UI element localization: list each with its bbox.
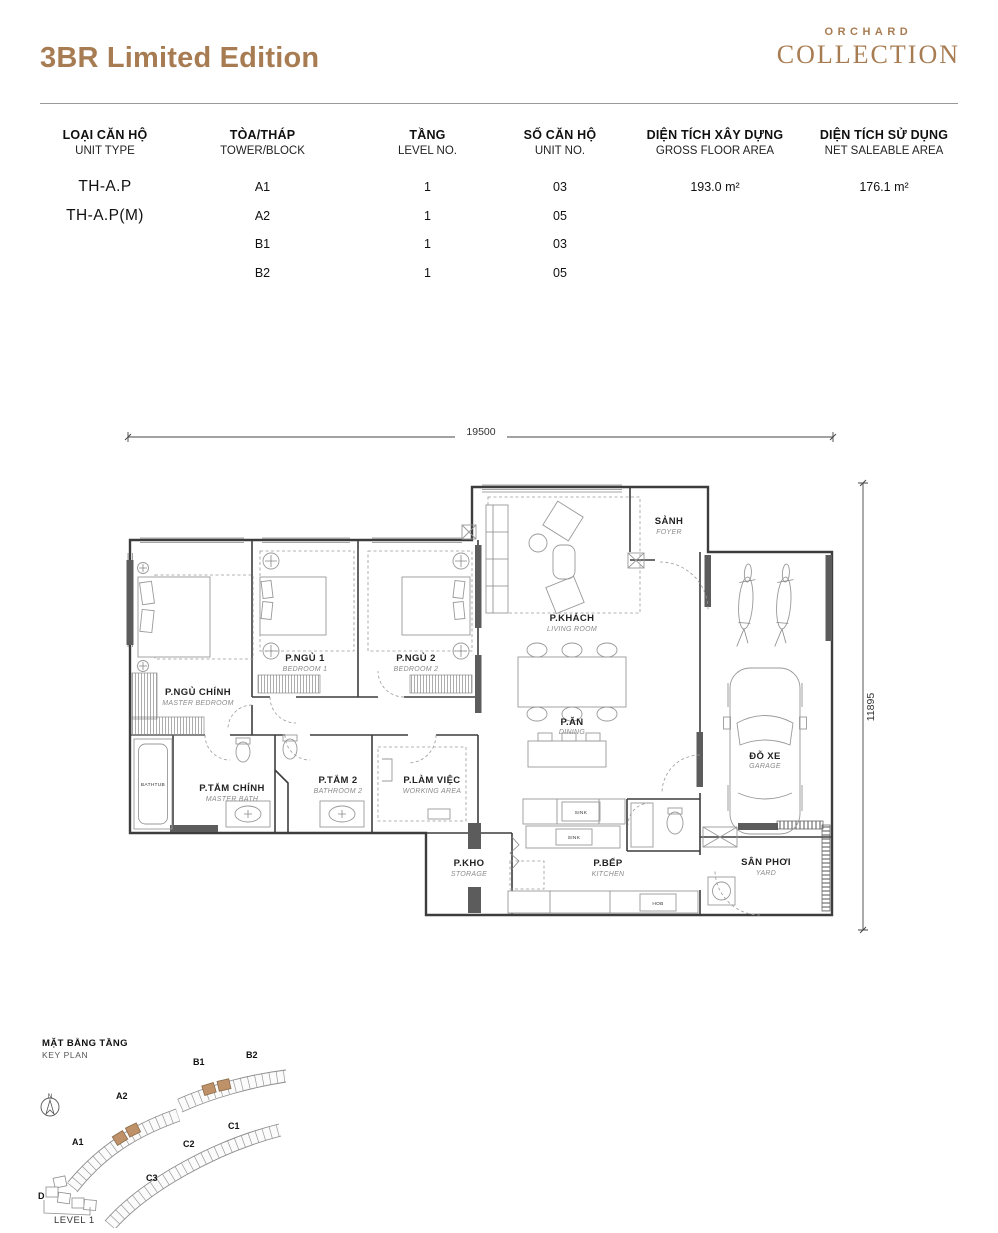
cell-unit-type: TH-A.P xyxy=(40,173,170,202)
svg-text:BEDROOM 1: BEDROOM 1 xyxy=(283,666,328,673)
dimension-width: 19500 xyxy=(125,426,836,442)
cell-net-area xyxy=(810,259,958,288)
brand-collection: COLLECTION xyxy=(777,40,960,70)
svg-text:YARD: YARD xyxy=(756,870,776,877)
bed2-icon xyxy=(368,551,472,659)
cell-tower: A2 xyxy=(170,202,355,231)
motorbike-icons xyxy=(735,564,795,648)
room-label-bedroom1: P.NGỦ 1 xyxy=(285,652,325,664)
cell-tower: B2 xyxy=(170,259,355,288)
dining-table-icon xyxy=(518,643,626,721)
keyplan-label-a1: A1 xyxy=(72,1137,84,1147)
col-header-unit-type: LOẠI CĂN HỘUNIT TYPE xyxy=(40,128,170,157)
svg-text:KITCHEN: KITCHEN xyxy=(592,871,625,878)
keyplan-label-b1: B1 xyxy=(193,1057,205,1067)
keyplan-title-vi: MẶT BẰNG TẦNG xyxy=(42,1038,128,1049)
cell-unit-no: 03 xyxy=(500,230,620,259)
room-label-working: P.LÀM VIỆC xyxy=(403,774,460,786)
cell-level: 1 xyxy=(355,173,500,202)
washing-machine-icon xyxy=(708,877,735,905)
svg-text:N: N xyxy=(48,1094,52,1100)
cell-unit-no: 05 xyxy=(500,259,620,288)
svg-text:WORKING AREA: WORKING AREA xyxy=(403,788,462,795)
cell-unit-no: 05 xyxy=(500,202,620,231)
table-row: B2 1 05 xyxy=(40,259,958,288)
svg-text:SINK: SINK xyxy=(575,810,588,816)
keyplan-band-b xyxy=(178,1070,286,1112)
svg-text:HOB: HOB xyxy=(652,901,663,907)
col-header-level: TẦNGLEVEL NO. xyxy=(355,128,500,157)
kitchen-counter-icon: SINK SINK HOB xyxy=(508,799,698,913)
wc-icon xyxy=(631,803,683,847)
svg-text:GARAGE: GARAGE xyxy=(749,763,781,770)
cell-gross-area xyxy=(620,230,810,259)
bed1-icon xyxy=(260,551,354,659)
master-bed-icon xyxy=(138,563,254,672)
dim-height-label: 11895 xyxy=(865,693,877,722)
brand-logo: ORCHARD COLLECTION xyxy=(777,26,960,70)
cell-unit-type xyxy=(40,259,170,288)
room-label-bedroom2: P.NGỦ 2 xyxy=(396,652,436,664)
svg-text:MASTER BEDROOM: MASTER BEDROOM xyxy=(162,700,233,707)
key-plan: MẶT BẰNG TẦNG KEY PLAN N xyxy=(28,1035,318,1228)
room-label-bathroom2: P.TẮM 2 xyxy=(318,775,357,786)
cell-gross-area: 193.0 m² xyxy=(620,173,810,202)
brand-orchard: ORCHARD xyxy=(777,26,960,38)
cell-unit-type: TH-A.P(M) xyxy=(40,202,170,231)
table-row: B1 1 03 xyxy=(40,230,958,259)
room-label-kitchen: P.BẾP xyxy=(593,858,623,869)
sofa-icon xyxy=(486,497,640,614)
room-label-foyer: SẢNH xyxy=(655,515,684,527)
cell-level: 1 xyxy=(355,202,500,231)
svg-text:BATHROOM 2: BATHROOM 2 xyxy=(314,788,363,795)
svg-text:STORAGE: STORAGE xyxy=(451,871,487,878)
room-label-dining: P.ĂN xyxy=(560,717,583,728)
svg-text:FOYER: FOYER xyxy=(656,529,682,536)
cell-tower: B1 xyxy=(170,230,355,259)
cell-tower: A1 xyxy=(170,173,355,202)
col-header-unit-no: SỐ CĂN HỘUNIT NO. xyxy=(500,128,620,157)
keyplan-label-c3: C3 xyxy=(146,1173,158,1183)
svg-text:LIVING ROOM: LIVING ROOM xyxy=(547,626,597,633)
room-label-living: P.KHÁCH xyxy=(550,613,595,624)
keyplan-label-b2: B2 xyxy=(246,1050,258,1060)
floor-plan: 19500 11895 xyxy=(110,425,890,940)
keyplan-title-en: KEY PLAN xyxy=(42,1050,88,1060)
cell-unit-type xyxy=(40,230,170,259)
keyplan-label-c2: C2 xyxy=(183,1139,195,1149)
cell-net-area xyxy=(810,202,958,231)
col-header-gross-area: DIỆN TÍCH XÂY DỰNGGROSS FLOOR AREA xyxy=(620,128,810,157)
bathtub-icon: BATHTUB xyxy=(134,739,172,829)
room-label-master-bath: P.TẮM CHÍNH xyxy=(199,783,264,794)
keyplan-label-a2: A2 xyxy=(116,1091,128,1101)
svg-text:SINK: SINK xyxy=(568,835,581,841)
cell-gross-area xyxy=(620,202,810,231)
room-label-yard: SÂN PHƠI xyxy=(741,856,791,868)
keyplan-label-c1: C1 xyxy=(228,1121,240,1131)
room-label-master-bedroom: P.NGỦ CHÍNH xyxy=(165,686,231,698)
cell-gross-area xyxy=(620,259,810,288)
dim-width-label: 19500 xyxy=(466,426,495,438)
page-title: 3BR Limited Edition xyxy=(40,42,319,75)
island-counter-icon xyxy=(528,733,606,767)
cell-net-area xyxy=(810,230,958,259)
cell-level: 1 xyxy=(355,259,500,288)
keyplan-level-label: LEVEL 1 xyxy=(54,1215,95,1226)
keyplan-highlight-unit xyxy=(217,1079,231,1091)
svg-text:BATHTUB: BATHTUB xyxy=(141,782,165,788)
dimension-height: 11895 xyxy=(858,480,877,933)
table-header-row: LOẠI CĂN HỘUNIT TYPE TÒA/THÁPTOWER/BLOCK… xyxy=(40,128,958,157)
cell-net-area: 176.1 m² xyxy=(810,173,958,202)
svg-text:MASTER BATH: MASTER BATH xyxy=(206,796,259,803)
cell-level: 1 xyxy=(355,230,500,259)
table-row: TH-A.P A1 1 03 193.0 m² 176.1 m² xyxy=(40,173,958,202)
col-header-tower: TÒA/THÁPTOWER/BLOCK xyxy=(170,128,355,157)
keyplan-label-d: D xyxy=(38,1191,45,1201)
table-row: TH-A.P(M) A2 1 05 xyxy=(40,202,958,231)
header-divider xyxy=(40,103,958,104)
north-arrow-icon: N xyxy=(41,1094,59,1116)
unit-info-table: LOẠI CĂN HỘUNIT TYPE TÒA/THÁPTOWER/BLOCK… xyxy=(40,128,958,287)
cell-unit-no: 03 xyxy=(500,173,620,202)
svg-text:BEDROOM 2: BEDROOM 2 xyxy=(394,666,439,673)
room-label-garage: ĐỖ XE xyxy=(749,750,781,762)
svg-text:DINING: DINING xyxy=(559,729,586,736)
col-header-net-area: DIỆN TÍCH SỬ DỤNGNET SALEABLE AREA xyxy=(810,128,958,157)
room-label-storage: P.KHO xyxy=(454,858,485,869)
